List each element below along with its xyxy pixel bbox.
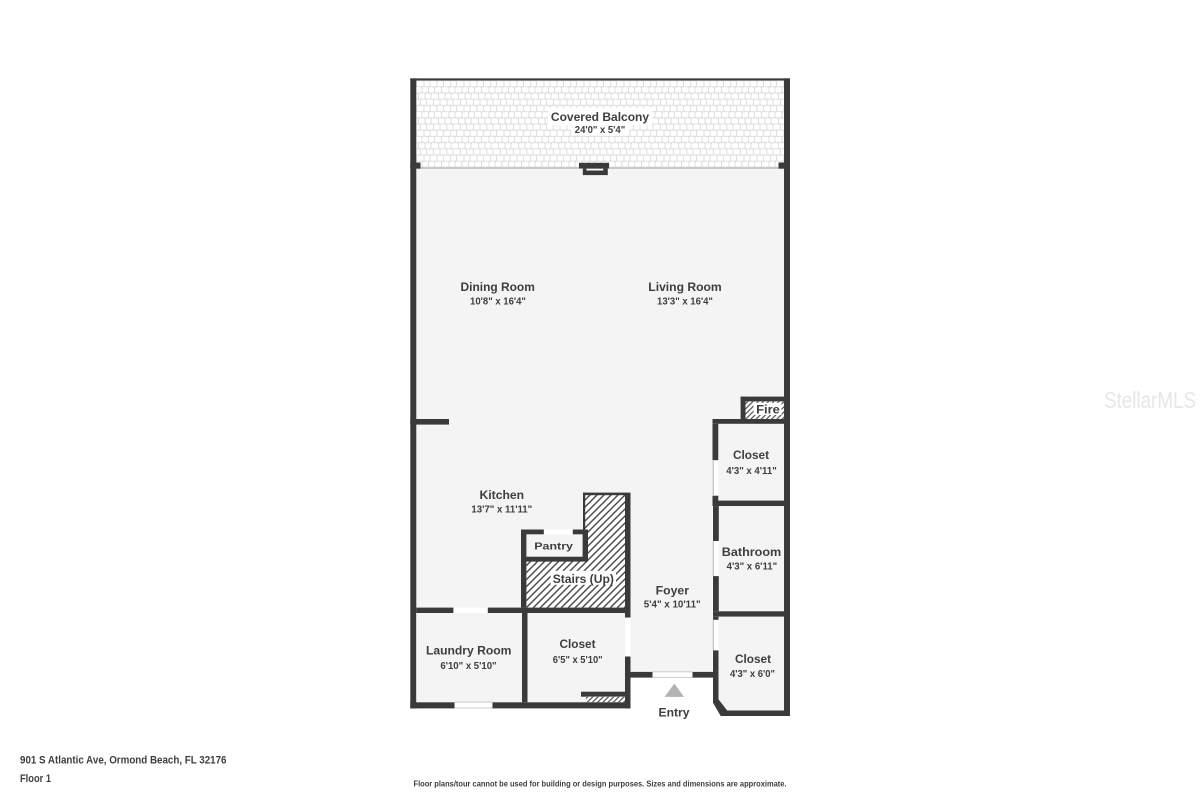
svg-text:Floor 1: Floor 1 [20, 773, 51, 785]
svg-text:13'3" x 16'4": 13'3" x 16'4" [657, 296, 713, 307]
svg-text:Closet: Closet [733, 448, 769, 462]
svg-text:4'3" x 4'11": 4'3" x 4'11" [726, 466, 777, 477]
svg-text:Closet: Closet [560, 637, 596, 651]
svg-text:Living Room: Living Room [648, 280, 721, 294]
svg-text:Laundry Room: Laundry Room [426, 644, 512, 658]
svg-text:Stairs (Up): Stairs (Up) [553, 572, 614, 586]
svg-text:Fire: Fire [756, 402, 780, 416]
svg-text:24'0" x 5'4": 24'0" x 5'4" [575, 125, 626, 136]
svg-text:13'7" x 11'11": 13'7" x 11'11" [471, 505, 532, 516]
svg-text:Floor plans/tour cannot be use: Floor plans/tour cannot be used for buil… [414, 780, 787, 789]
svg-text:Bathroom: Bathroom [722, 545, 781, 559]
svg-text:StellarMLS: StellarMLS [1104, 387, 1196, 413]
svg-text:5'4" x 10'11": 5'4" x 10'11" [644, 600, 701, 611]
svg-text:Dining Room: Dining Room [461, 280, 535, 294]
svg-text:10'8" x 16'4": 10'8" x 16'4" [470, 296, 526, 307]
svg-text:6'5" x 5'10": 6'5" x 5'10" [553, 655, 603, 666]
svg-text:Pantry: Pantry [534, 541, 573, 553]
svg-text:Entry: Entry [659, 705, 690, 719]
svg-text:4'3" x 6'11": 4'3" x 6'11" [727, 561, 778, 572]
svg-text:Closet: Closet [735, 652, 771, 666]
svg-text:6'10" x 5'10": 6'10" x 5'10" [440, 661, 496, 672]
svg-text:4'3" x 6'0": 4'3" x 6'0" [730, 669, 775, 680]
svg-text:901 S Atlantic Ave, Ormond Bea: 901 S Atlantic Ave, Ormond Beach, FL 321… [20, 755, 227, 767]
svg-text:Foyer: Foyer [656, 583, 690, 597]
svg-text:Covered Balcony: Covered Balcony [551, 110, 649, 124]
svg-text:Kitchen: Kitchen [480, 488, 525, 502]
